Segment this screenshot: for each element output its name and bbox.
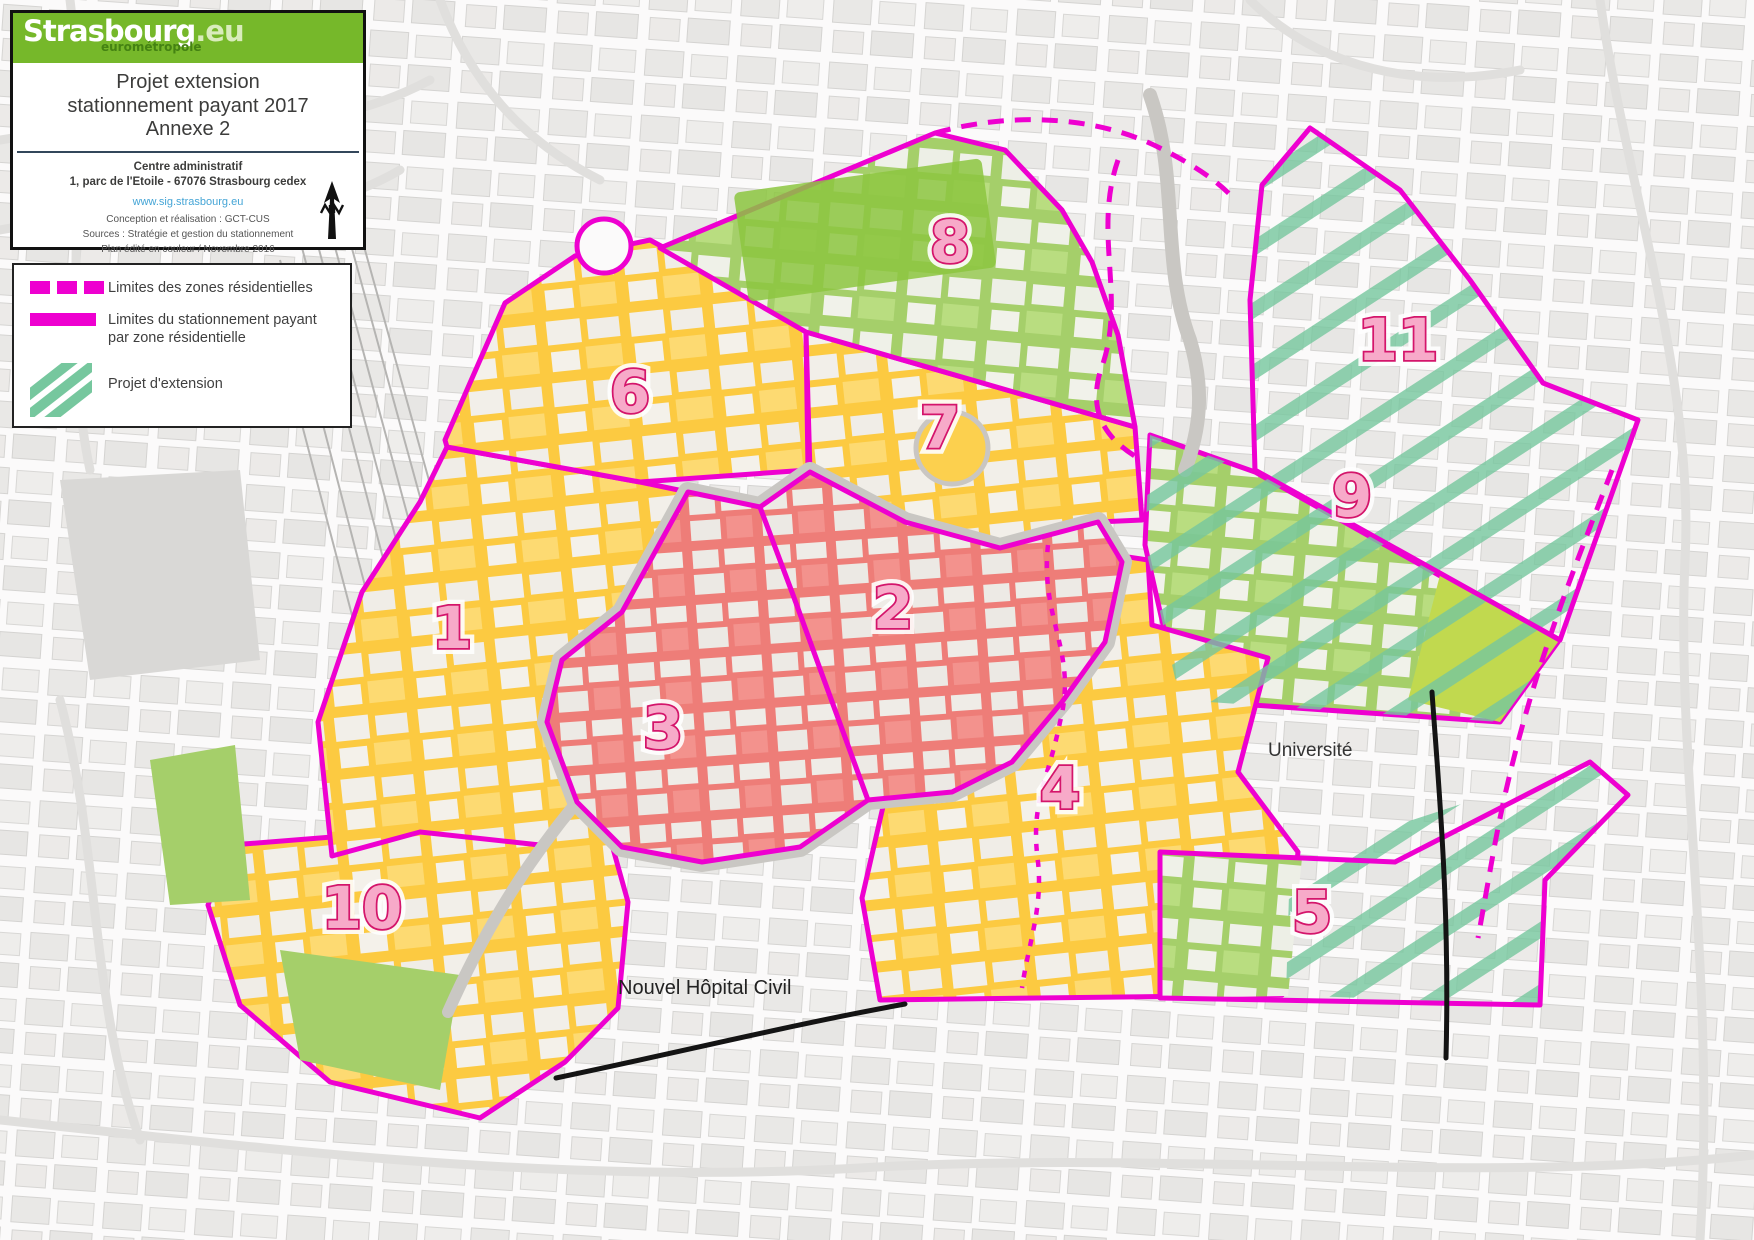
title-line-2: stationnement payant 2017 (13, 95, 363, 119)
svg-text:6: 6 (610, 358, 650, 426)
legend-item-paid-parking-limits: Limites du stationnement payant par zone… (30, 311, 338, 347)
credit-line-1: Conception et réalisation : GCT-CUS (13, 212, 363, 227)
zone-3-number: 33 (643, 694, 683, 762)
solid-line-swatch (30, 313, 108, 326)
svg-text:11: 11 (1358, 306, 1439, 374)
logo-tld: .eu (195, 14, 243, 48)
zone-5-number: 55 (1292, 878, 1332, 946)
zone-9-number: 99 (1332, 462, 1372, 530)
strasbourg-eu-logo: Strasbourg.eu eurométropole (13, 13, 363, 63)
north-arrow-icon (315, 179, 349, 241)
svg-text:4: 4 (1040, 754, 1080, 822)
svg-text:3: 3 (643, 694, 683, 762)
title-line-3: Annexe 2 (13, 118, 363, 142)
zone-7-number: 77 (920, 394, 960, 462)
svg-text:8: 8 (930, 208, 970, 276)
address-line-1: Centre administratif (13, 160, 363, 176)
svg-text:5: 5 (1292, 878, 1332, 946)
svg-text:9: 9 (1332, 462, 1372, 530)
zone-11-number: 1111 (1358, 306, 1439, 374)
website-link[interactable]: www.sig.strasbourg.eu (13, 196, 363, 208)
svg-text:10: 10 (322, 874, 403, 942)
dashed-line-swatch (30, 281, 108, 294)
credit-line-2: Sources : Stratégie et gestion du statio… (13, 227, 363, 242)
legend-label-1: Limites des zones résidentielles (108, 279, 313, 297)
address-line-2: 1, parc de l'Etoile - 67076 Strasbourg c… (13, 175, 363, 191)
legend-item-residential-limits: Limites des zones résidentielles (30, 279, 338, 297)
map-sheet: Université Nouvel Hôpital Civil 11 22 33… (0, 0, 1754, 1240)
zone-6-number: 66 (610, 358, 650, 426)
legend-label-2: Limites du stationnement payant par zone… (108, 311, 338, 347)
legend: Limites des zones résidentielles Limites… (12, 263, 352, 428)
legend-item-extension-project: Projet d'extension (30, 361, 338, 417)
universite-label: Université (1268, 740, 1352, 761)
zone-5-green-patch (1160, 852, 1302, 998)
legend-label-3: Projet d'extension (108, 375, 223, 393)
hopital-label: Nouvel Hôpital Civil (618, 977, 791, 999)
title-line-1: Projet extension (13, 71, 363, 95)
zone-4-number: 44 (1040, 754, 1080, 822)
page-title: Projet extension stationnement payant 20… (13, 63, 363, 142)
svg-text:7: 7 (920, 394, 960, 462)
zone-1-number: 11 (432, 594, 472, 662)
zone-8-number: 88 (930, 208, 970, 276)
place-haguenau-roundabout (577, 219, 631, 273)
title-box: Strasbourg.eu eurométropole Projet exten… (10, 10, 366, 250)
svg-text:1: 1 (432, 594, 472, 662)
svg-text:2: 2 (873, 574, 913, 642)
title-divider (17, 151, 359, 153)
zone-2-number: 22 (873, 574, 913, 642)
credit-line-3: Plan édité en couleur / Novembre 2016 (13, 242, 363, 257)
hatch-swatch (30, 363, 108, 417)
zone-10-number: 1010 (322, 874, 403, 942)
